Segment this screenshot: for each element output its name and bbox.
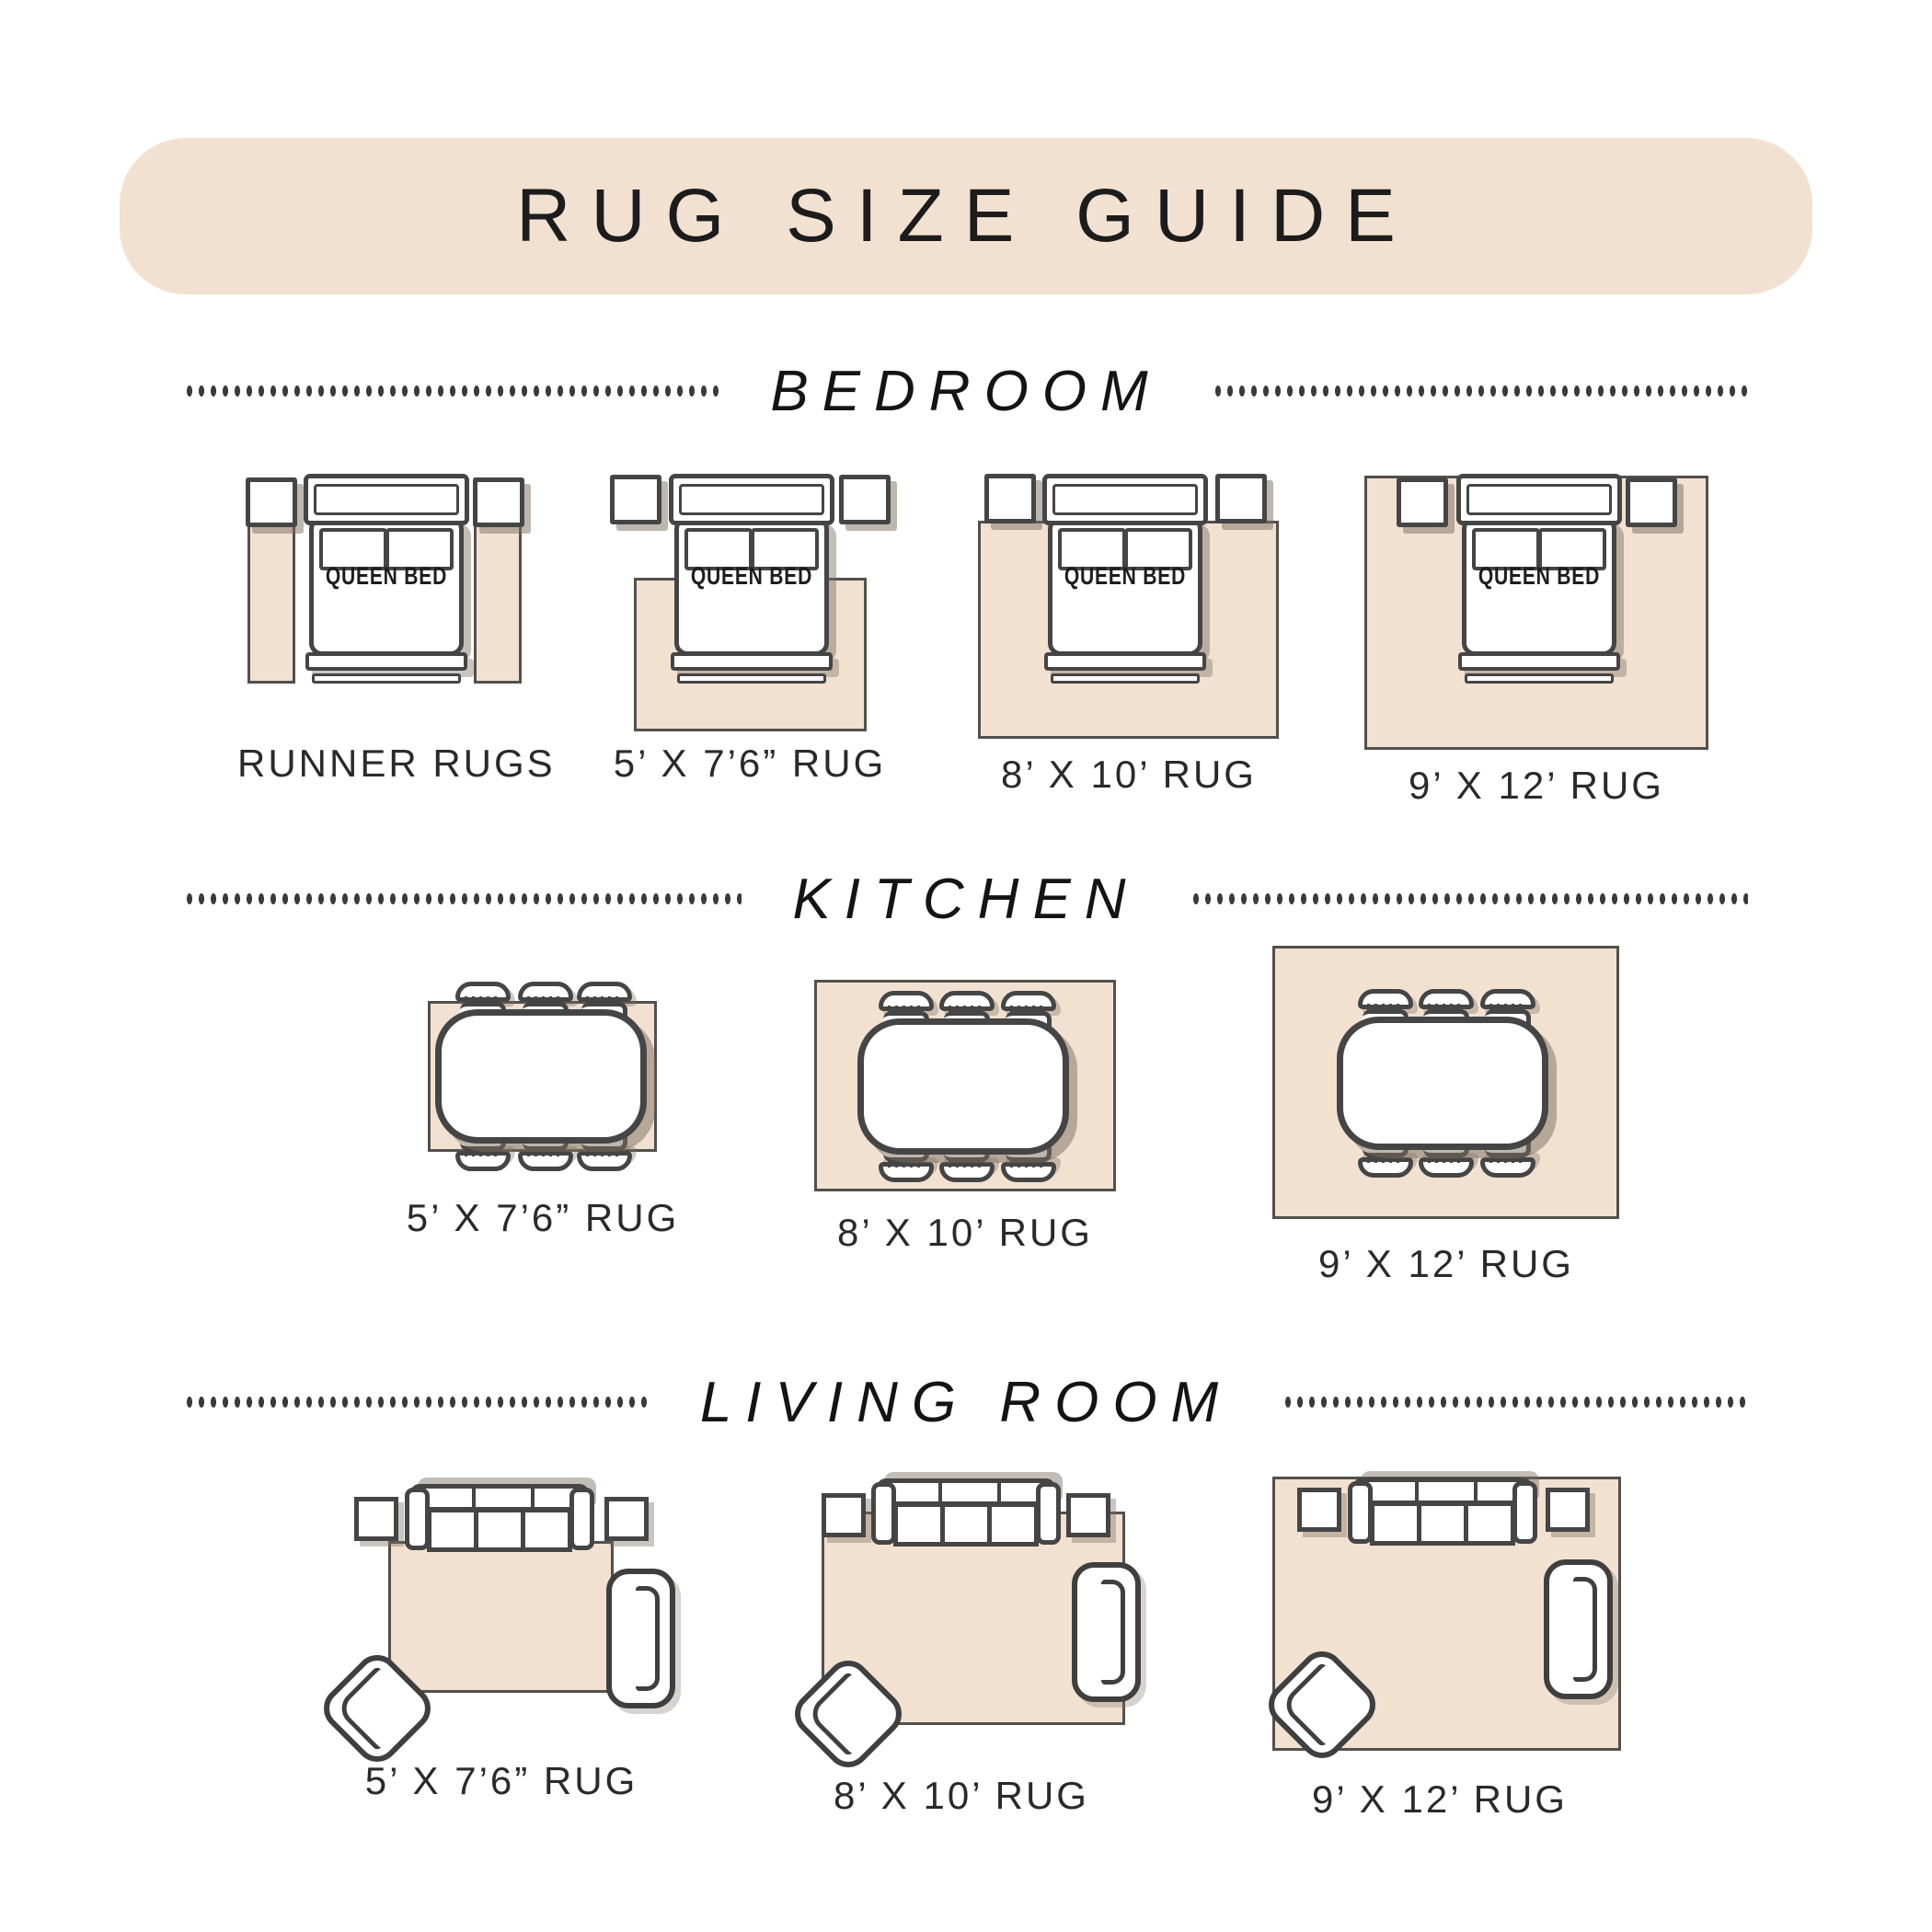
nightstand — [473, 477, 524, 527]
sofa-seats — [1370, 1501, 1515, 1546]
headboard — [669, 474, 834, 525]
nightstand — [1397, 477, 1448, 527]
rug-size-label: 9’ X 12’ RUG — [1389, 764, 1684, 808]
rug-size-label: 5’ X 7’6” RUG — [336, 1759, 667, 1803]
footboard — [1458, 652, 1620, 671]
bedroom-section-header: BEDROOM — [184, 350, 1748, 432]
side-table — [354, 1497, 398, 1541]
nightstand — [610, 475, 661, 524]
rug-size-label: 5’ X 7’6” RUG — [377, 1196, 708, 1240]
rug-size-label: 8’ X 10’ RUG — [799, 1211, 1131, 1255]
footrail — [677, 673, 826, 684]
rug-size-label: 9’ X 12’ RUG — [1274, 1777, 1605, 1822]
sofa-arm — [1512, 1481, 1537, 1544]
nightstand — [1626, 477, 1677, 527]
rug-5x76 — [388, 1541, 614, 1693]
armchair — [1544, 1559, 1613, 1699]
dining-table — [857, 1018, 1069, 1155]
page-title: RUG SIZE GUIDE — [516, 173, 1416, 259]
sofa-arm — [871, 1482, 896, 1545]
footrail — [1465, 673, 1614, 684]
armchair — [1072, 1562, 1141, 1702]
sofa-seats — [893, 1502, 1039, 1547]
footrail — [1051, 673, 1200, 684]
queen-bed: QUEEN BED — [1042, 474, 1208, 684]
nightstand — [246, 477, 297, 527]
queen-bed-label: QUEEN BED — [687, 562, 816, 591]
side-table — [822, 1493, 866, 1537]
headboard — [1456, 474, 1622, 525]
queen-bed: QUEEN BED — [1456, 474, 1622, 684]
living-room-section-title: LIVING ROOM — [700, 1370, 1232, 1435]
sofa-arm — [1036, 1482, 1061, 1545]
nightstand — [984, 474, 1036, 523]
side-table — [1297, 1488, 1341, 1532]
headboard — [1042, 474, 1208, 525]
dotted-divider — [1190, 892, 1748, 905]
queen-bed: QUEEN BED — [304, 474, 469, 684]
dotted-divider — [1213, 385, 1748, 397]
nightstand — [1215, 474, 1267, 523]
queen-bed-label: QUEEN BED — [1475, 562, 1604, 591]
side-table — [1066, 1493, 1110, 1537]
sofa-arm — [405, 1488, 430, 1550]
rug-size-label: RUNNER RUGS — [237, 742, 532, 786]
kitchen-section-header: KITCHEN — [184, 857, 1748, 940]
bedroom-section-title: BEDROOM — [770, 359, 1161, 424]
dotted-divider — [184, 1396, 650, 1409]
sofa-arm — [569, 1488, 594, 1550]
footboard — [1044, 652, 1206, 671]
sofa-seats — [427, 1508, 572, 1552]
footboard — [671, 652, 833, 671]
dotted-divider — [184, 892, 742, 905]
living-room-section-header: LIVING ROOM — [184, 1361, 1748, 1443]
sofa — [1348, 1478, 1537, 1549]
kitchen-section-title: KITCHEN — [792, 867, 1139, 932]
dotted-divider — [1282, 1396, 1748, 1409]
footrail — [312, 673, 461, 684]
dotted-divider — [184, 385, 719, 397]
nightstand — [839, 475, 891, 524]
title-banner: RUG SIZE GUIDE — [120, 138, 1812, 294]
rug-size-label: 8’ X 10’ RUG — [982, 753, 1276, 797]
sofa — [405, 1484, 594, 1556]
rug-size-label: 9’ X 12’ RUG — [1281, 1242, 1612, 1286]
armchair — [606, 1569, 675, 1708]
dining-table — [1337, 1017, 1548, 1150]
rug-size-label: 5’ X 7’6” RUG — [603, 742, 897, 786]
footboard — [305, 652, 467, 671]
side-table — [604, 1497, 649, 1541]
sofa-arm — [1348, 1481, 1373, 1544]
rug-size-label: 8’ X 10’ RUG — [796, 1774, 1127, 1818]
sofa — [871, 1478, 1061, 1550]
headboard — [304, 474, 469, 525]
rug-size-guide-infographic: RUG SIZE GUIDE BEDROOM QUEEN BED RUNNER … — [0, 0, 1932, 1932]
queen-bed: QUEEN BED — [669, 474, 834, 684]
queen-bed-label: QUEEN BED — [1061, 562, 1190, 591]
side-table — [1546, 1488, 1590, 1532]
dining-table — [435, 1009, 647, 1144]
queen-bed-label: QUEEN BED — [322, 562, 451, 591]
